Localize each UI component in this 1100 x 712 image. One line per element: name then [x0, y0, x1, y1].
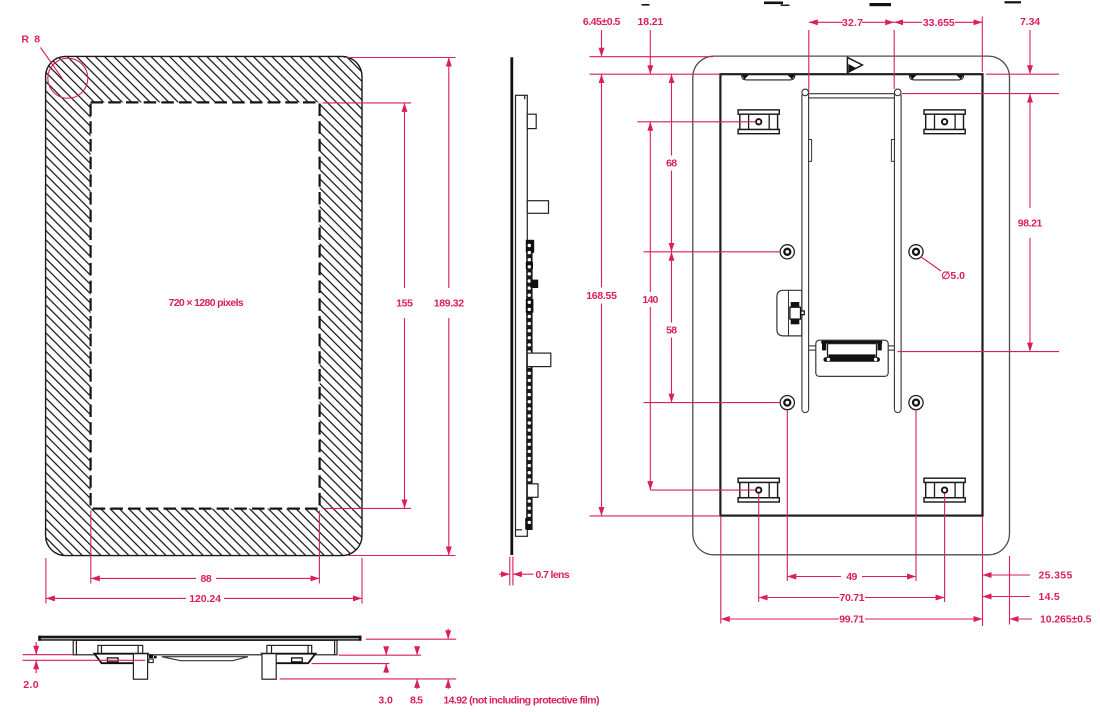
svg-text:120.24: 120.24 [189, 593, 221, 605]
svg-text:10.265±0.5: 10.265±0.5 [1040, 614, 1092, 626]
svg-text:7.34: 7.34 [1020, 16, 1040, 28]
svg-text:18.21: 18.21 [638, 16, 664, 28]
svg-text:155: 155 [396, 298, 413, 310]
svg-text:58: 58 [666, 325, 677, 337]
svg-text:99.71: 99.71 [839, 614, 864, 626]
svg-text:49: 49 [846, 571, 857, 583]
svg-text:14.5: 14.5 [1039, 591, 1060, 603]
svg-text:70.71: 70.71 [839, 592, 864, 604]
svg-text:∅5.0: ∅5.0 [941, 270, 965, 282]
svg-text:88: 88 [201, 573, 212, 585]
svg-text:6.45±0.5: 6.45±0.5 [583, 16, 621, 28]
svg-text:98.21: 98.21 [1018, 218, 1043, 230]
svg-text:25.355: 25.355 [1039, 570, 1073, 582]
svg-text:720 × 1280 pixels: 720 × 1280 pixels [169, 297, 244, 309]
svg-text:2.0: 2.0 [23, 679, 39, 691]
svg-text:0.7 lens: 0.7 lens [536, 569, 570, 581]
svg-text:32.7: 32.7 [842, 17, 863, 29]
svg-text:3.0: 3.0 [378, 695, 393, 707]
svg-text:189.32: 189.32 [434, 298, 465, 310]
svg-text:140: 140 [642, 294, 658, 306]
svg-text:14.92 (not including protectiv: 14.92 (not including protective film) [443, 695, 599, 707]
svg-text:33.655: 33.655 [923, 17, 955, 29]
svg-text:8.5: 8.5 [410, 695, 423, 707]
svg-text:R 8: R 8 [21, 34, 40, 46]
svg-text:168.55: 168.55 [586, 290, 617, 302]
svg-text:68: 68 [666, 158, 677, 170]
